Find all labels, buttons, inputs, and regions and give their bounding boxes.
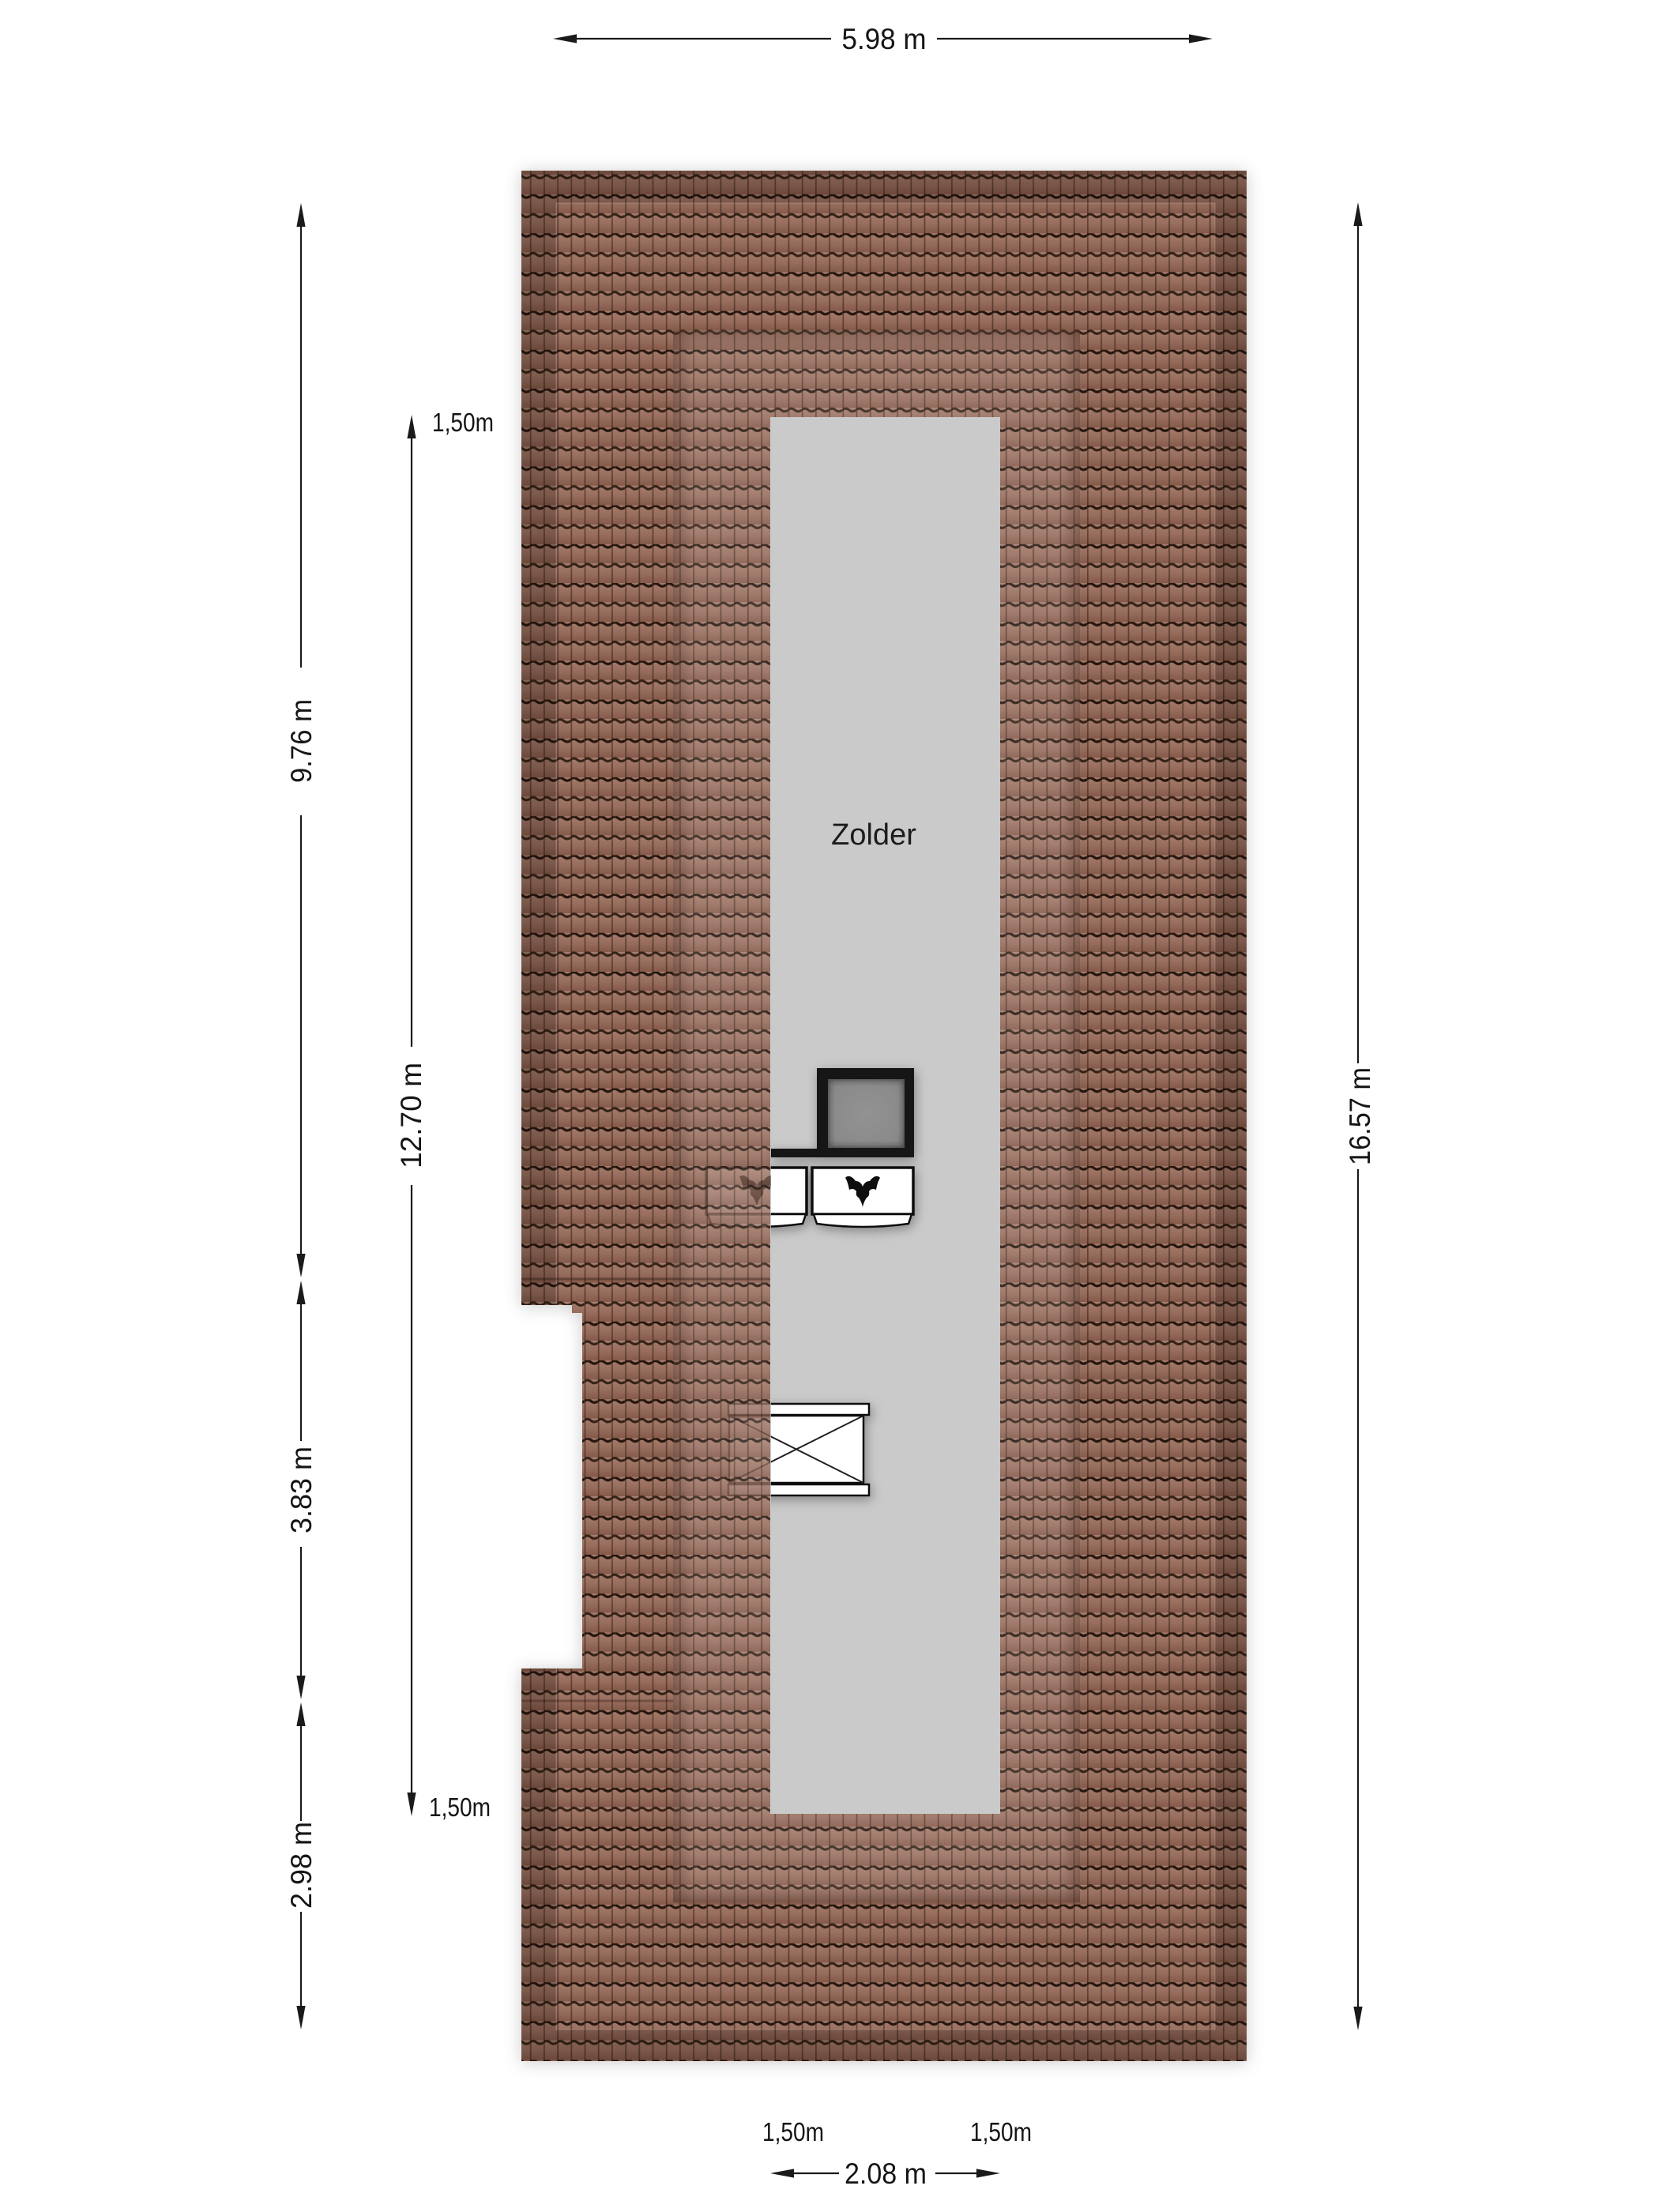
svg-text:2.98 m: 2.98 m xyxy=(285,1822,318,1909)
svg-text:12.70 m: 12.70 m xyxy=(395,1063,427,1168)
svg-text:1,50m: 1,50m xyxy=(970,2117,1032,2146)
svg-text:16.57 m: 16.57 m xyxy=(1344,1067,1376,1165)
svg-text:1,50m: 1,50m xyxy=(432,408,494,437)
svg-text:2.08 m: 2.08 m xyxy=(845,2157,927,2190)
svg-text:Zolder: Zolder xyxy=(831,818,916,852)
svg-text:5.98 m: 5.98 m xyxy=(842,23,927,55)
svg-text:3.83 m: 3.83 m xyxy=(285,1446,318,1533)
svg-text:9.76 m: 9.76 m xyxy=(285,699,318,783)
svg-text:1,50m: 1,50m xyxy=(762,2117,824,2146)
svg-text:1,50m: 1,50m xyxy=(429,1793,491,1822)
